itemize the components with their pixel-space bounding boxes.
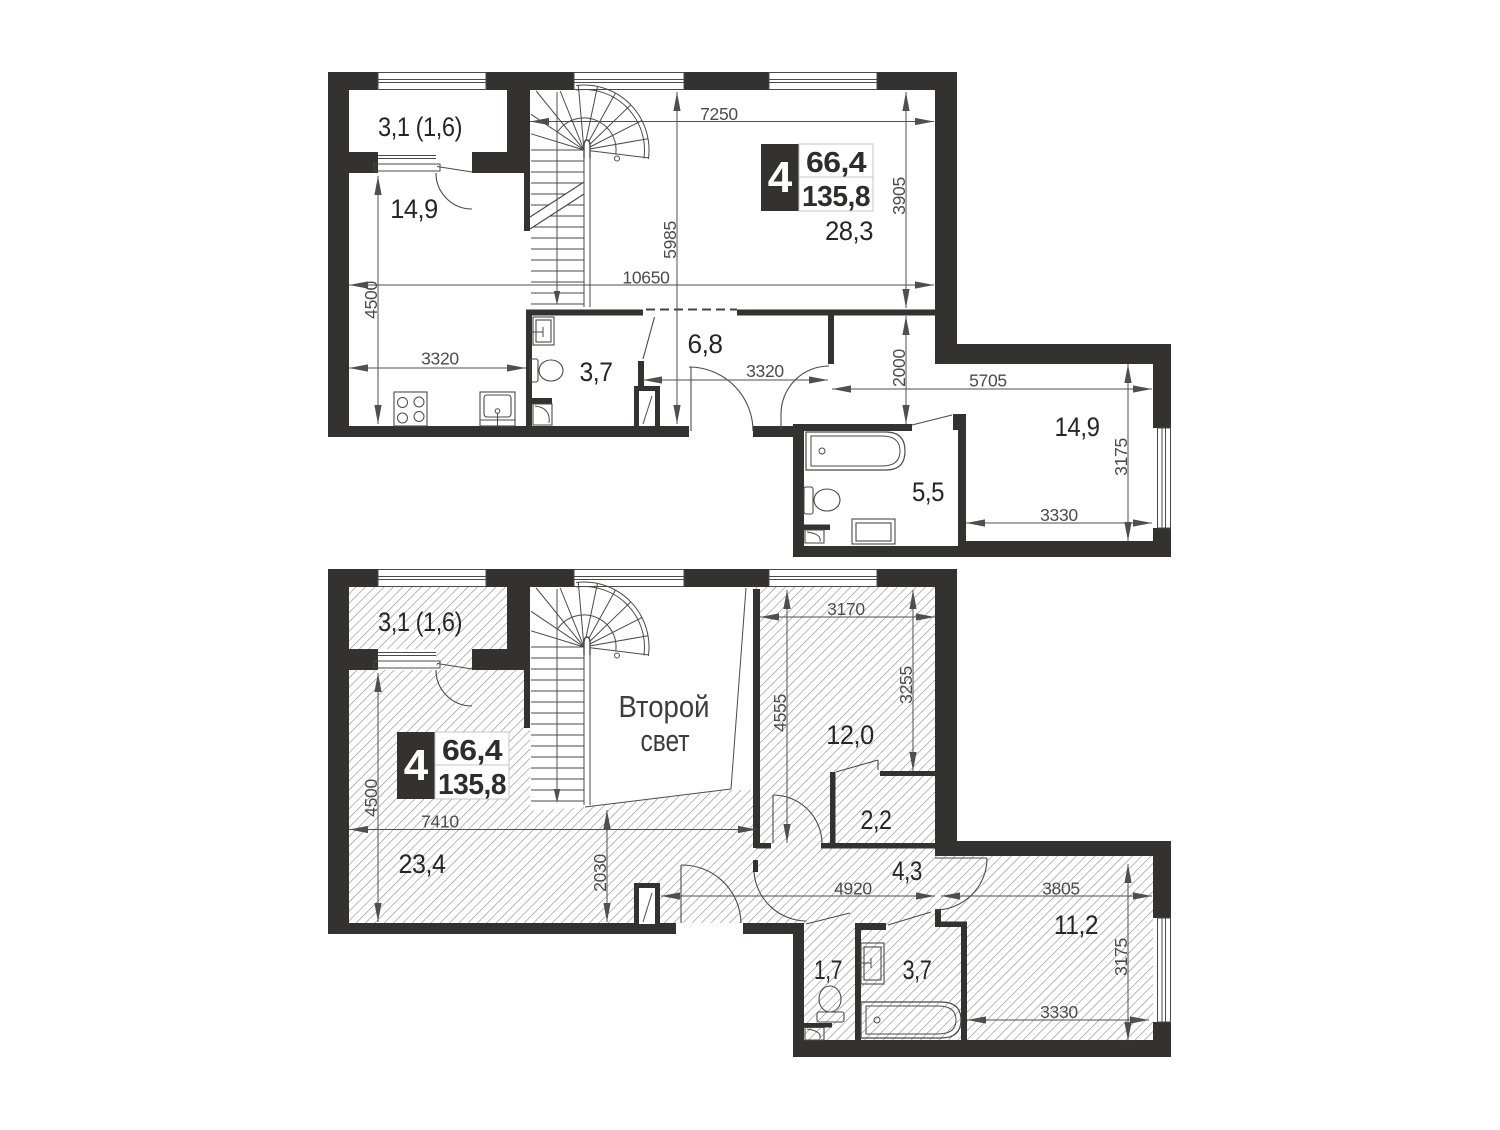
svg-text:135,8: 135,8: [438, 769, 506, 801]
svg-text:3320: 3320: [746, 361, 784, 381]
svg-text:1,7: 1,7: [814, 955, 842, 985]
svg-text:3330: 3330: [1040, 1002, 1078, 1022]
svg-text:4: 4: [404, 741, 429, 790]
svg-text:135,8: 135,8: [802, 181, 870, 213]
svg-text:66,4: 66,4: [806, 147, 866, 179]
svg-text:7250: 7250: [700, 104, 738, 124]
svg-text:12,0: 12,0: [826, 720, 874, 750]
svg-text:свет: свет: [641, 723, 690, 758]
svg-text:4500: 4500: [361, 779, 381, 817]
svg-text:3320: 3320: [421, 349, 459, 369]
svg-text:3175: 3175: [1111, 938, 1131, 976]
svg-text:6,8: 6,8: [688, 329, 723, 359]
svg-text:4555: 4555: [770, 694, 790, 732]
svg-text:3170: 3170: [827, 599, 865, 619]
svg-text:3905: 3905: [889, 177, 909, 215]
svg-text:3175: 3175: [1111, 438, 1131, 476]
svg-text:4920: 4920: [834, 879, 872, 899]
svg-text:4500: 4500: [361, 281, 381, 319]
svg-text:2000: 2000: [889, 349, 909, 387]
svg-text:5985: 5985: [660, 221, 680, 259]
svg-text:2030: 2030: [590, 854, 610, 892]
svg-text:3,7: 3,7: [580, 357, 613, 387]
svg-text:28,3: 28,3: [825, 216, 873, 246]
svg-text:14,9: 14,9: [1055, 412, 1100, 442]
svg-text:4,3: 4,3: [892, 856, 922, 886]
svg-text:5705: 5705: [969, 371, 1007, 391]
svg-text:11,2: 11,2: [1054, 910, 1098, 940]
svg-text:66,4: 66,4: [442, 735, 502, 767]
svg-text:3255: 3255: [896, 666, 916, 704]
svg-text:10650: 10650: [622, 268, 670, 288]
svg-text:5,5: 5,5: [912, 477, 944, 507]
svg-text:2,2: 2,2: [861, 805, 892, 835]
svg-text:3,1 (1,6): 3,1 (1,6): [378, 112, 462, 142]
svg-text:23,4: 23,4: [399, 849, 446, 879]
svg-text:3330: 3330: [1040, 505, 1078, 525]
svg-text:3805: 3805: [1042, 879, 1080, 899]
svg-text:7410: 7410: [421, 812, 459, 832]
svg-text:3,1 (1,6): 3,1 (1,6): [378, 607, 462, 637]
svg-text:14,9: 14,9: [390, 194, 438, 224]
svg-text:3,7: 3,7: [903, 955, 932, 985]
svg-text:Второй: Второй: [619, 689, 710, 724]
svg-text:4: 4: [768, 153, 793, 202]
